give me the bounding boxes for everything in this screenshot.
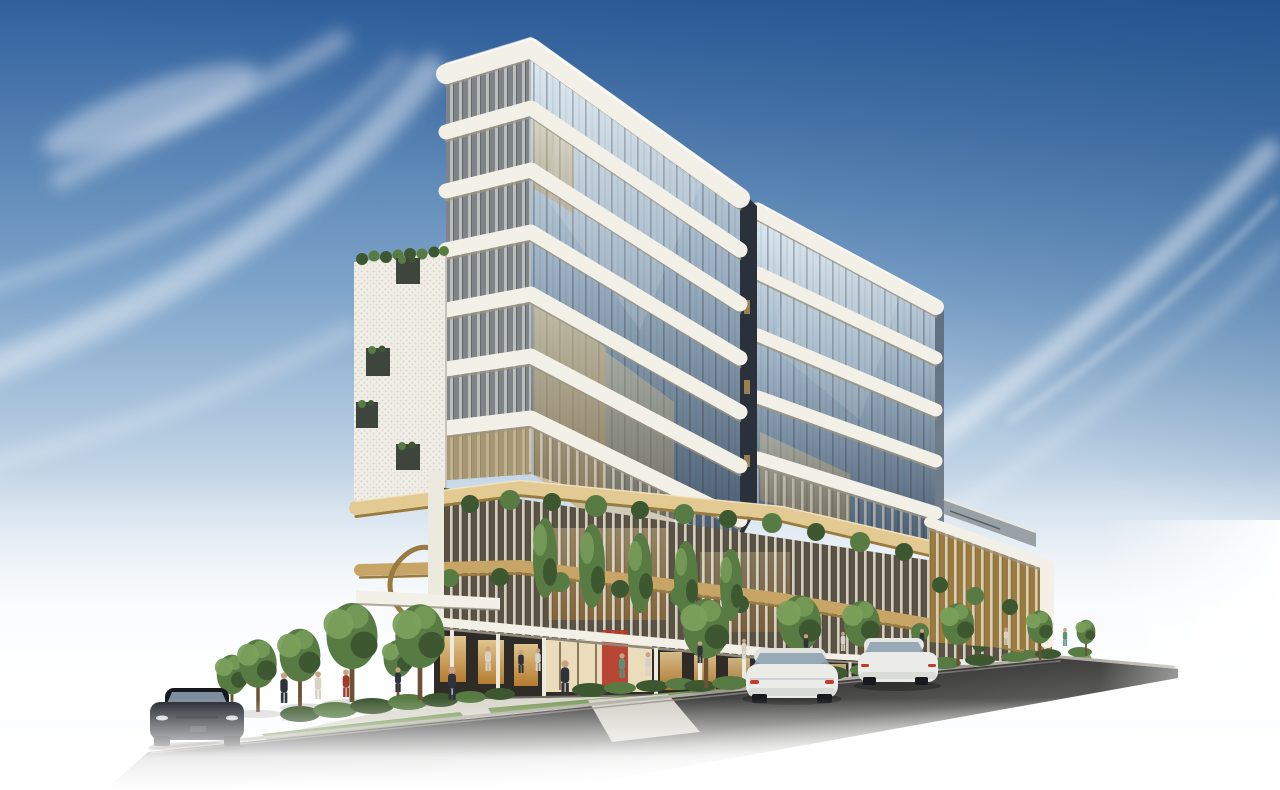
bottom-fade [0,698,1280,790]
tail-light [861,664,869,667]
storefront-window [478,640,504,684]
render-canvas: Daytime photorealistic render of a moder… [0,0,1280,790]
tail-light [750,680,759,684]
wheel [915,677,928,685]
tail-light [928,664,936,667]
storefront-window [514,644,538,686]
wheel [863,677,876,685]
trunk-line [750,678,834,680]
tail-light [825,680,834,684]
right-edge-fade [1100,520,1280,710]
architectural-rendering: Daytime photorealistic render of a moder… [0,0,1280,790]
